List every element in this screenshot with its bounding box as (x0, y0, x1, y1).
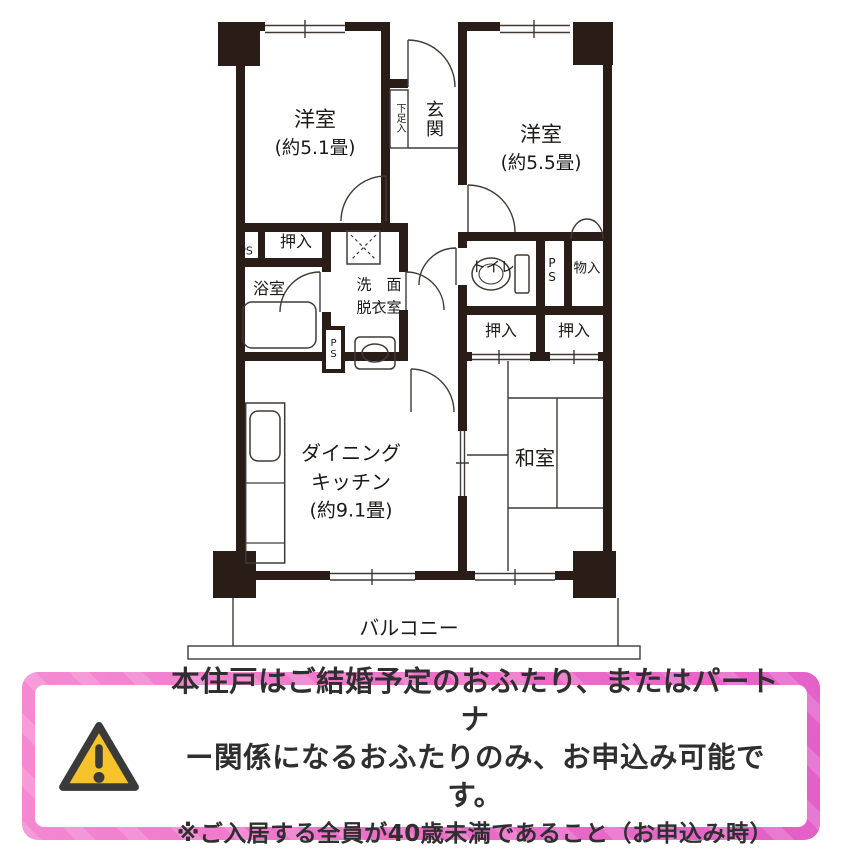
label-yoshitsu1-size: (約5.1畳) (275, 140, 356, 159)
label-dk-1: ダイニング (301, 443, 401, 463)
notice-line-1: 本住戸はご結婚予定のおふたり、またはパートナ (161, 663, 789, 739)
kitchen-sink-icon (250, 411, 280, 461)
floor-plan: 洋室 (約5.1畳) 下足入 玄関 洋室 (約5.5畳) PS 押入 浴室 洗 … (185, 8, 645, 668)
window-room1 (265, 20, 345, 38)
washing-machine-icon (347, 231, 380, 264)
label-yoshitsu2-size: (約5.5畳) (501, 155, 582, 174)
label-senmen-2: 脱衣室 (356, 301, 401, 316)
label-yoshitsu1: 洋室 (294, 110, 336, 131)
closet-front-2 (550, 350, 598, 364)
door-room2 (468, 185, 515, 232)
entrance-door-arc (408, 40, 455, 87)
door-room1 (341, 176, 386, 221)
label-ps-right: PS (546, 256, 558, 284)
notice-text: 本住戸はご結婚予定のおふたり、またはパートナ ー関係になるおふたりのみ、お申込み… (161, 663, 789, 849)
label-balcony: バルコニー (359, 618, 459, 638)
label-getabako: 下足入 (394, 103, 404, 133)
closet-front-1 (472, 350, 530, 364)
notice-line-2: ー関係になるおふたりのみ、お申込み可能です。 (161, 739, 789, 815)
label-bathroom: 浴室 (253, 281, 285, 297)
notice-banner: 本住戸はご結婚予定のおふたり、またはパートナ ー関係になるおふたりのみ、お申込み… (22, 672, 820, 840)
door-toilet (419, 248, 456, 285)
walls (213, 22, 616, 598)
label-toilet: トイレ (471, 261, 515, 276)
label-ps-top: PS (239, 246, 253, 257)
label-mononyu: 物入 (574, 262, 601, 276)
notice-line-3: ※ご入居する全員が40歳未満であること（お申込み時） (161, 819, 789, 849)
window-washitsu (475, 569, 555, 585)
label-dk-2: キッチン (311, 472, 391, 492)
balcony-base (188, 646, 640, 659)
door-senmen (406, 272, 444, 310)
label-genkan: 玄関 (424, 100, 442, 138)
label-senmen-1: 洗 面 (356, 278, 401, 293)
sliding-door-dk-washitsu (456, 431, 469, 496)
warning-triangle-icon (57, 718, 141, 794)
label-oshiire-r1: 押入 (485, 323, 517, 339)
door-dk (411, 369, 454, 412)
notice-inner: 本住戸はご結婚予定のおふたり、またはパートナ ー関係になるおふたりのみ、お申込み… (35, 685, 807, 827)
label-dk-3: (約9.1畳) (309, 502, 392, 521)
label-yoshitsu2: 洋室 (520, 125, 562, 146)
label-oshiire-left: 押入 (280, 234, 312, 250)
label-washitsu: 和室 (515, 448, 555, 468)
label-ps-mid: PS (328, 338, 338, 360)
window-room2 (500, 20, 570, 38)
window-dk (330, 569, 415, 585)
label-oshiire-r2: 押入 (558, 323, 590, 339)
kitchen-counter-icon (246, 403, 285, 563)
